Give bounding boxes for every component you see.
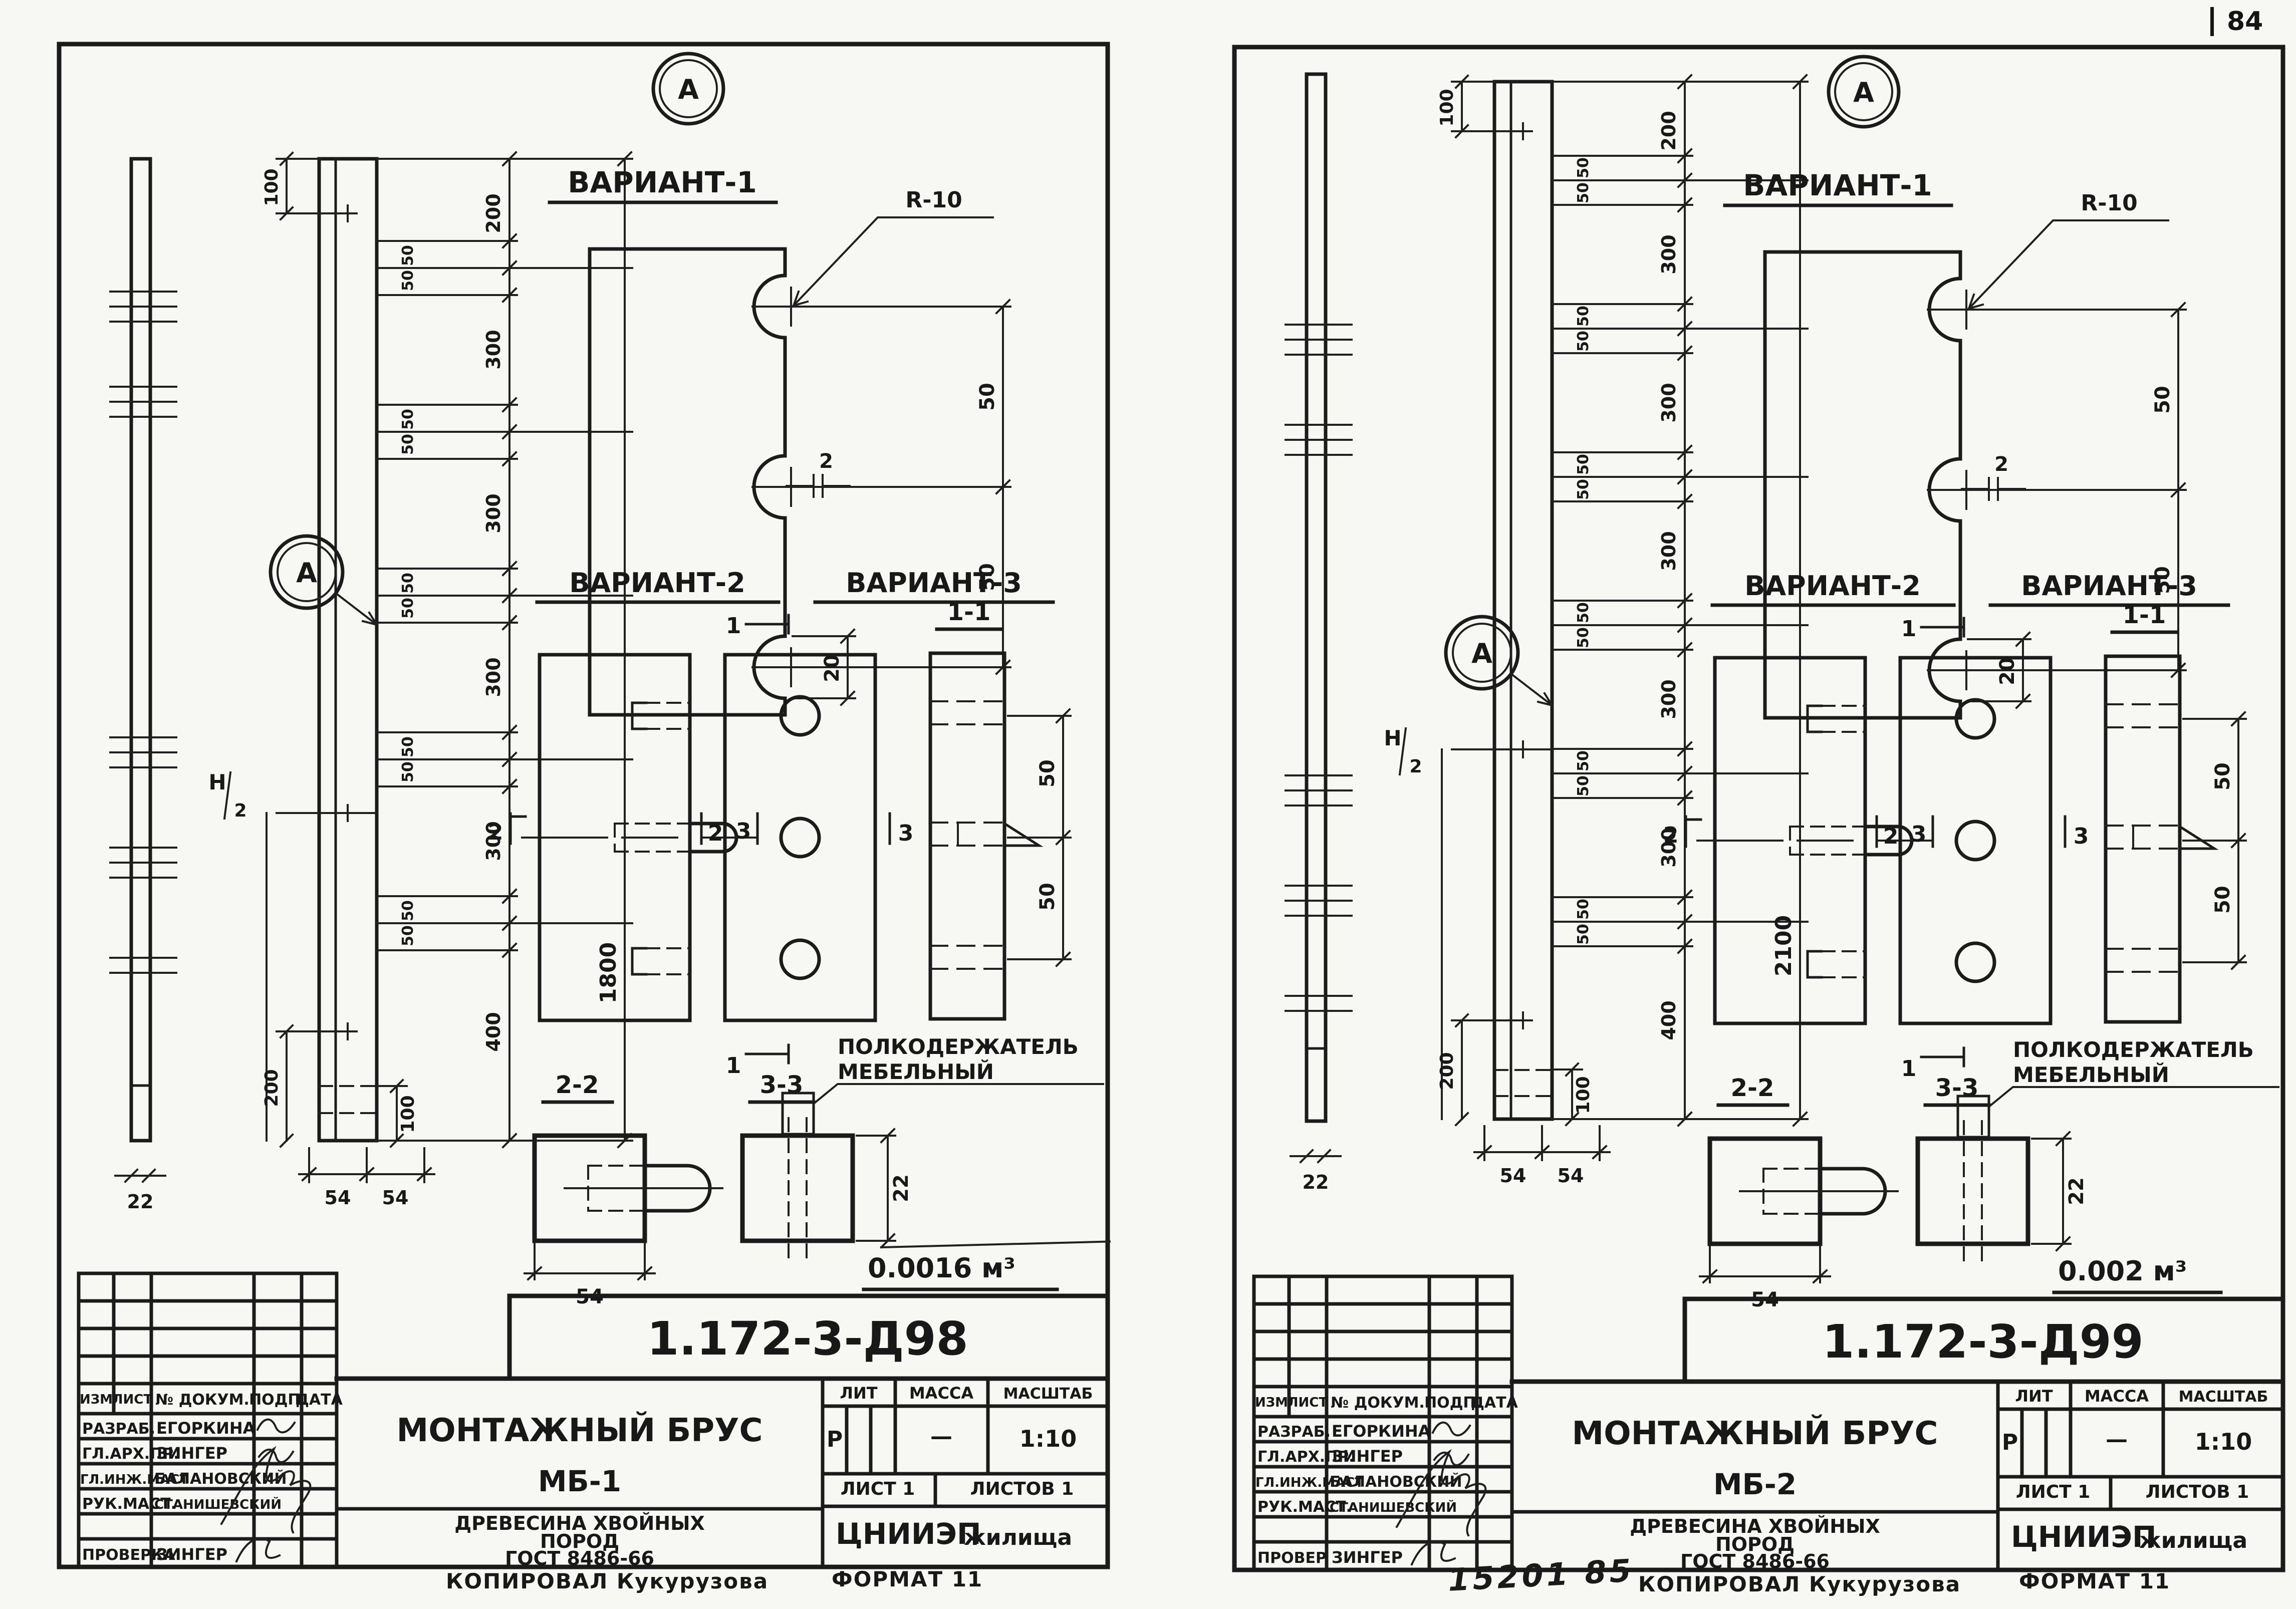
side-view-bar: 22 — [110, 159, 176, 1213]
variant1-title: ВАРИАНТ-1 — [568, 165, 757, 199]
section11-bar — [2106, 656, 2180, 1022]
shelf-holder-leader — [816, 1084, 1103, 1102]
cut-label-3: 3 — [2074, 824, 2089, 849]
section11-hidden-bands — [930, 701, 1004, 969]
view-a-letter: А — [678, 74, 699, 105]
variant1-notched-edge — [754, 249, 785, 715]
dim-label: 54 — [1558, 1165, 1584, 1187]
tb-sheets-total: ЛИСТОВ 1 — [2146, 1482, 2249, 1502]
detail-a-callout: А — [1446, 617, 1552, 705]
side-bar-ticks — [1286, 325, 1352, 1011]
dim-label: 50 — [1575, 924, 1592, 945]
dim-label: 22 — [1303, 1171, 1329, 1193]
radius-label: R-10 — [2081, 190, 2137, 216]
tb-col-list: ЛИСТ — [1288, 1395, 1328, 1410]
dim-label: 50 — [2211, 886, 2234, 914]
tb-title: МОНТАЖНЫЙ БРУС — [397, 1411, 763, 1449]
doc-number: 1.172-3-Д98 — [647, 1312, 968, 1366]
sheet-mb1: 22 100 Н 2 200 100 54 54 200 300 300 300… — [56, 41, 1111, 1574]
dim-label: 50 — [1036, 759, 1059, 787]
detail-a-callout: А — [271, 536, 377, 625]
view-a-letter: А — [1853, 77, 1874, 108]
volume-note: 0.002 м³ — [2058, 1255, 2187, 1287]
doc-number: 1.172-3-Д99 — [1822, 1315, 2143, 1369]
tb-sheets-total: ЛИСТОВ 1 — [970, 1479, 1074, 1499]
tb-row-name: СТАНИШЕВСКИЙ — [1330, 1499, 1457, 1515]
variant2-title: ВАРИАНТ-2 — [1744, 570, 1921, 602]
tb-org-2: жилища — [2139, 1528, 2247, 1553]
axis-cross-marks — [340, 205, 356, 1039]
section22-title: 2-2 — [1731, 1074, 1774, 1102]
shelf-holder-label-1: ПОЛКОДЕРЖАТЕЛЬ — [838, 1034, 1079, 1059]
tb-material-3: ГОСТ 8486-66 — [1680, 1550, 1830, 1572]
detail-a-leader — [1511, 674, 1552, 705]
variant3-hole-mid — [1956, 822, 1994, 860]
tb-lit-value: Р — [827, 1427, 843, 1452]
tb-sheet-no: ЛИСТ 1 — [2016, 1482, 2091, 1502]
tb-sheet-no: ЛИСТ 1 — [841, 1479, 915, 1499]
cross-sections: 2-2 54 3-3 ПОЛКОДЕРЖАТЕЛЬ МЕБЕЛЬНЫЙ 22 0… — [1700, 1037, 2278, 1311]
chain-label: 300 — [1658, 383, 1680, 422]
section11-50-chain — [2183, 712, 2246, 969]
section33-body — [1918, 1139, 2028, 1244]
dim-label: 50 — [976, 383, 999, 411]
dim-label: 50 — [1036, 883, 1059, 911]
section1-label: 1 — [726, 1053, 741, 1079]
dim-label: 50 — [399, 598, 417, 619]
dim-label: 2 — [819, 450, 833, 473]
dim-label: 100 — [1437, 89, 1457, 126]
volume-note: 0.0016 м³ — [868, 1252, 1015, 1284]
tb-col-izm: ИЗМ — [1255, 1395, 1288, 1410]
tb-row-name: ЗИНГЕР — [156, 1444, 227, 1463]
tb-row-name: СТАНИШЕВСКИЙ — [154, 1496, 282, 1512]
dim-label: 50 — [1575, 306, 1592, 327]
tb-row-role: РАЗРАБ. — [82, 1420, 155, 1438]
section1-mark-bottom — [1921, 1048, 1964, 1066]
dim-label: 50 — [399, 409, 417, 430]
section1-label: 1 — [1901, 1056, 1917, 1082]
front-bar-outline — [319, 159, 377, 1141]
title-block: 1.172-3-Д99 ИЗМ ЛИСТ № ДОКУМ. ПОДП. ДАТА… — [1254, 1276, 2283, 1572]
variant23-views: ВАРИАНТ-2 ВАРИАНТ-3 2 2 3 3 1 1 1-1 — [1663, 570, 2246, 1082]
dim-label: 22 — [127, 1191, 154, 1213]
chain-label: 400 — [1658, 1000, 1680, 1040]
dim-label: 54 — [382, 1187, 409, 1209]
tb-scale-value: 1:10 — [2195, 1428, 2252, 1455]
dim-label: 200 — [262, 1069, 282, 1107]
dim-label: 22 — [890, 1174, 913, 1202]
side-view-bar: 22 — [1286, 74, 1352, 1193]
tb-lit-header: ЛИТ — [840, 1384, 877, 1403]
h2-numerator: Н — [208, 770, 226, 794]
variant2-dowel-bottom — [632, 948, 646, 974]
chain-label: 200 — [1658, 111, 1680, 150]
shelf-holder-leader — [1991, 1087, 2278, 1105]
dim-label: 2 — [1994, 453, 2008, 476]
tb-row-role: ПРОВЕР — [1257, 1549, 1327, 1567]
section1-label: 1 — [1901, 616, 1917, 642]
variant2-dowel-bottom-hidden — [1822, 951, 1865, 977]
dim-label: 50 — [399, 761, 417, 782]
shelf-holder-label-1: ПОЛКОДЕРЖАТЕЛЬ — [2013, 1037, 2254, 1062]
section1-mark-bottom — [746, 1045, 789, 1063]
tb-row-name: ЗИНГЕР — [156, 1545, 227, 1564]
tb-mark: МБ-1 — [538, 1464, 621, 1498]
tb-mass-value: — — [930, 1424, 952, 1449]
chain-label: 300 — [482, 330, 504, 369]
section1-label: 1 — [726, 613, 741, 639]
width-54-chain — [299, 1148, 434, 1182]
format-note-right: ФОРМАТ 11 — [2019, 1569, 2170, 1593]
variant2-dowel-bottom-hidden — [646, 948, 690, 974]
h2-datum-line — [267, 813, 377, 1141]
tb-row-name: ЗИНГЕР — [1332, 1548, 1403, 1567]
notch-pair-extension-lines — [1552, 156, 1808, 946]
dim-label: 50 — [1575, 627, 1592, 648]
dim-label: 50 — [1575, 182, 1592, 203]
shelf-holder — [1958, 1096, 1989, 1137]
dim-label: 54 — [1500, 1165, 1526, 1187]
section11-50-chain — [1008, 709, 1071, 966]
dim-label: 50 — [2151, 386, 2174, 414]
section1-mark-top — [1921, 618, 1964, 636]
front-bar-outline — [1494, 82, 1552, 1119]
chain-label: 400 — [482, 1012, 504, 1051]
cut-label-2: 2 — [488, 820, 503, 845]
dim-label: 50 — [1575, 454, 1592, 475]
tb-mass-value: — — [2106, 1427, 2128, 1452]
tb-org-1: ЦНИИЭП — [836, 1517, 981, 1551]
side-bar-width-chain — [115, 1170, 165, 1182]
section22-54-chain — [1700, 1246, 1830, 1282]
dim-label: 50 — [399, 900, 417, 921]
dim-label: 200 — [1437, 1052, 1457, 1090]
variant1-title: ВАРИАНТ-1 — [1743, 168, 1932, 202]
section22-title: 2-2 — [556, 1071, 599, 1099]
section22-54-chain — [525, 1243, 655, 1279]
axis-cross-marks — [1515, 123, 1531, 1028]
front-bar-bottom-dashes — [1494, 1070, 1552, 1096]
detail-a-letter: А — [296, 557, 317, 589]
copied-by-left: КОПИРОВАЛ Кукурузова — [446, 1569, 769, 1593]
variant3-hole-mid — [781, 819, 819, 857]
variant3-hole-bottom — [1956, 943, 1994, 981]
chain-label: 300 — [482, 657, 504, 697]
dim-label: 20 — [821, 654, 844, 682]
section11-bar — [930, 653, 1004, 1019]
section33-hole-hidden — [1964, 1121, 1982, 1261]
tb-scale-value: 1:10 — [1019, 1425, 1077, 1452]
section33-body — [742, 1136, 853, 1241]
cut-label-2: 2 — [1663, 823, 1679, 848]
dim-label: 20 — [1996, 657, 2019, 685]
copied-by-right: КОПИРОВАЛ Кукурузова — [1638, 1572, 1961, 1596]
section33-hole-hidden — [789, 1118, 807, 1258]
overall-dim-label: 2100 — [1771, 915, 1797, 976]
detail-a-letter: А — [1471, 638, 1492, 669]
tb-lit-value: Р — [2002, 1430, 2018, 1455]
section11-hidden-bands — [2106, 704, 2180, 972]
format-note-left: ФОРМАТ 11 — [832, 1567, 983, 1591]
dim-label: 50 — [399, 925, 417, 946]
tb-col-doc: № ДОКУМ. — [155, 1391, 249, 1409]
cut-label-2: 2 — [1883, 824, 1899, 849]
chain-label: 200 — [482, 193, 504, 233]
front-view-bar: 100 Н 2 200 100 54 54 200 300 300 300 30… — [1384, 75, 1808, 1187]
variant1-detail: А ВАРИАНТ-1 R-10 50 50 2 20 — [550, 54, 1010, 715]
dim-label: 50 — [399, 573, 417, 594]
dim-label: 50 — [1575, 479, 1592, 500]
tb-org-1: ЦНИИЭП — [2011, 1520, 2157, 1554]
h2-datum-line — [1442, 749, 1552, 1119]
variant1-notched-edge — [1929, 252, 1960, 718]
tb-material-3: ГОСТ 8486-66 — [505, 1547, 654, 1569]
tb-col-doc: № ДОКУМ. — [1331, 1394, 1425, 1412]
h2-denominator: 2 — [234, 800, 246, 821]
top-offset-chain — [1452, 76, 1532, 137]
top-offset-chain — [277, 153, 357, 219]
dim-label: 50 — [1575, 775, 1592, 796]
chain-label: 300 — [482, 493, 504, 533]
front-bar-bottom-dashes — [319, 1086, 377, 1113]
cut-label-2: 2 — [708, 821, 723, 846]
section11-flag — [2180, 827, 2214, 849]
dim-label: 22 — [2065, 1177, 2088, 1205]
variant3-hole-bottom — [781, 940, 819, 978]
cut-label-3: 3 — [736, 819, 751, 844]
shelf-holder — [783, 1093, 814, 1134]
dim-label: 50 — [1575, 602, 1592, 623]
chain-label: 300 — [1658, 234, 1680, 274]
tb-scale-header: МАСШТАБ — [2179, 1388, 2268, 1406]
dim-label: 100 — [262, 168, 282, 206]
shelf-holder-label-2: МЕБЕЛЬНЫЙ — [838, 1059, 994, 1084]
variant1-detail: А ВАРИАНТ-1 R-10 50 50 2 20 — [1725, 57, 2186, 718]
dim-label: 50 — [399, 736, 417, 757]
radius-leader — [794, 217, 993, 306]
h2-datum: Н 2 — [1384, 726, 1552, 1119]
tb-lit-header: ЛИТ — [2015, 1387, 2053, 1406]
chain-label: 300 — [1658, 679, 1680, 719]
tb-org-2: жилища — [964, 1525, 1072, 1550]
variant2-title: ВАРИАНТ-2 — [569, 567, 745, 599]
tb-row-name: ЗИНГЕР — [1332, 1447, 1403, 1466]
dim-label: 54 — [325, 1187, 351, 1209]
variant3-title: ВАРИАНТ-3 — [2021, 570, 2197, 602]
dim-label: 50 — [1575, 157, 1592, 178]
side-bar-ticks — [110, 292, 176, 973]
dim-label: 50 — [399, 270, 417, 291]
segment-chain-line — [377, 159, 632, 1141]
tb-mass-header: МАССА — [909, 1384, 974, 1403]
radius-leader — [1969, 220, 2168, 309]
section1-mark-top — [746, 615, 789, 633]
dim-label: 50 — [2211, 762, 2234, 790]
side-bar-width-chain — [1291, 1150, 1341, 1162]
tb-col-izm: ИЗМ — [80, 1392, 113, 1407]
chain-label: 300 — [1658, 531, 1680, 571]
tb-title: МОНТАЖНЫЙ БРУС — [1572, 1414, 1938, 1452]
dim-label: 50 — [1575, 331, 1592, 352]
title-block: 1.172-3-Д98 ИЗМ ЛИСТ № ДОКУМ. ПОДП. ДАТА… — [79, 1273, 1108, 1569]
cut-mark-2-left — [1686, 817, 1701, 847]
cut-mark-2-left — [511, 814, 526, 844]
tb-col-list: ЛИСТ — [112, 1392, 152, 1407]
tb-row-name: ЕГОРКИНА — [1332, 1422, 1431, 1441]
cross-sections: 2-2 54 3-3 ПОЛКОДЕРЖАТЕЛЬ МЕБЕЛЬНЫЙ 22 0… — [525, 1034, 1111, 1308]
dim-label: 100 — [1573, 1076, 1594, 1114]
h2-numerator: Н — [1384, 726, 1401, 750]
detail-a-leader — [336, 593, 377, 625]
overall-dim-label: 1800 — [596, 942, 621, 1003]
cut-label-3: 3 — [1911, 822, 1927, 847]
h2-denominator: 2 — [1409, 756, 1422, 777]
dim-label: 100 — [398, 1095, 418, 1133]
cut-label-3: 3 — [898, 821, 914, 846]
dim-label: 50 — [1575, 899, 1592, 920]
variant2-dowel-bottom — [1808, 951, 1822, 977]
sheet-mb2: 22 100 Н 2 200 100 54 54 200 300 300 300… — [1231, 44, 2286, 1577]
dim-label: 50 — [1575, 750, 1592, 771]
side-bar-outline — [1307, 74, 1326, 1121]
width-54-chain — [1474, 1126, 1610, 1160]
tb-mass-header: МАССА — [2085, 1387, 2149, 1406]
tb-row-role: РАЗРАБ. — [1257, 1423, 1331, 1441]
radius-label: R-10 — [905, 187, 962, 213]
page-number: 84 — [2210, 7, 2263, 36]
tb-scale-header: МАСШТАБ — [1003, 1385, 1093, 1403]
section11-title: 1-1 — [2123, 601, 2166, 629]
dim-label: 50 — [399, 434, 417, 455]
variant3-title: ВАРИАНТ-3 — [846, 567, 1022, 599]
shelf-holder-label-2: МЕБЕЛЬНЫЙ — [2013, 1062, 2169, 1087]
tb-row-name: ЕГОРКИНА — [156, 1419, 256, 1438]
section11-title: 1-1 — [947, 598, 991, 626]
tb-mark: МБ-2 — [1713, 1467, 1797, 1501]
scanned-drawing-page: { "page": { "number": "84" }, "labels": … — [0, 0, 2296, 1609]
front-view-bar: 100 Н 2 200 100 54 54 200 300 300 300 30… — [208, 152, 632, 1209]
dim-label: 50 — [399, 245, 417, 266]
variant23-views: ВАРИАНТ-2 ВАРИАНТ-3 2 2 3 3 1 1 1-1 — [488, 567, 1071, 1079]
section11-flag — [1004, 824, 1039, 846]
